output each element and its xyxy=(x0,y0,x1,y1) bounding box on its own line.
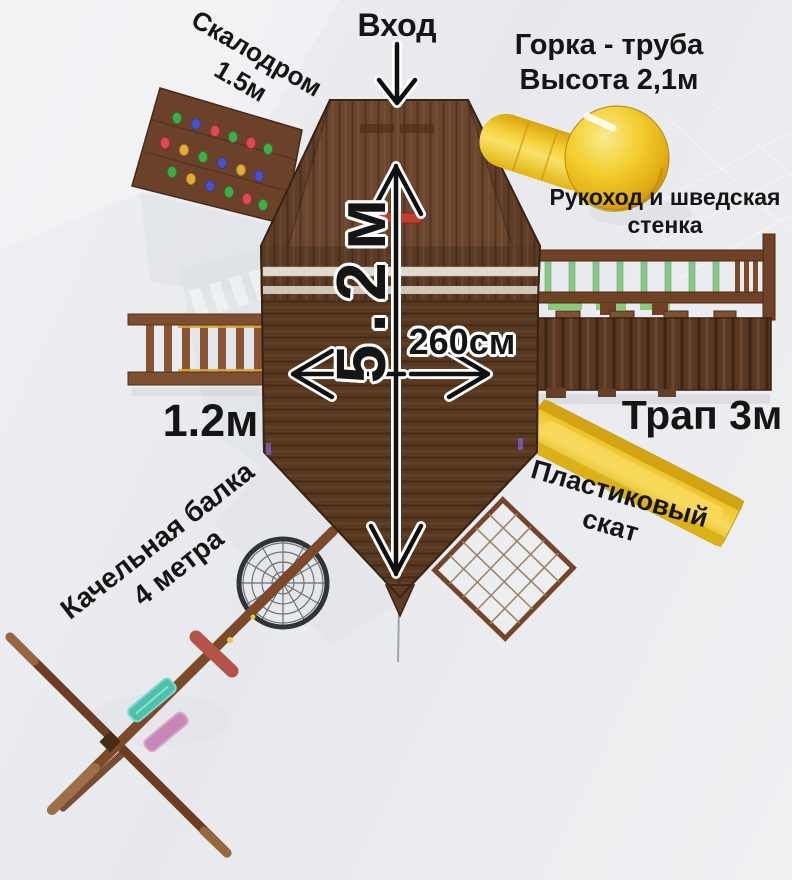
playground-top-view-diagram: Вход Горка - труба Высота 2,1м Скалодром… xyxy=(0,0,792,880)
ramp xyxy=(533,311,771,398)
monkey-bars-label-line2: стенка xyxy=(534,211,792,239)
ramp-label: Трап 3м xyxy=(612,390,792,440)
tube-slide-label-line2: Высота 2,1м xyxy=(478,63,740,98)
swedish-wall-bars xyxy=(735,260,758,294)
tube-slide-label: Горка - труба Высота 2,1м xyxy=(478,28,740,99)
monkey-bar-rungs xyxy=(545,260,719,294)
monkey-bars-label: Рукоход и шведская стенка xyxy=(534,183,792,239)
ladder-label: 1.2м xyxy=(138,394,283,449)
monkey-bars-label-line1: Рукоход и шведская xyxy=(534,183,792,211)
tube-slide-label-line1: Горка - труба xyxy=(478,28,740,63)
width-dimension-label: 260см xyxy=(382,320,542,364)
monkey-bars xyxy=(528,234,775,320)
entrance-label: Вход xyxy=(327,6,467,45)
swing-beam-stub xyxy=(63,753,123,808)
monkey-bars-end-post xyxy=(763,234,775,320)
roof-hatch-left xyxy=(360,124,394,133)
roof-hatch-right xyxy=(400,124,434,133)
length-dimension-label: 5.2м xyxy=(319,140,395,430)
access-ladder xyxy=(128,314,284,385)
